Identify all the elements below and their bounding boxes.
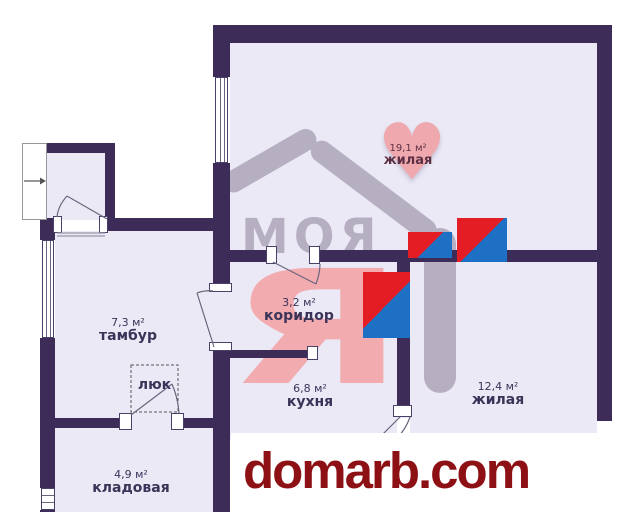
- site-watermark: domarb.com: [231, 433, 630, 509]
- room-label-tambur: 7,3 м² тамбур: [83, 317, 173, 344]
- footer-banner: domarb.com: [231, 433, 630, 512]
- room-name: кладовая: [86, 481, 176, 496]
- tambur-door-swing: [197, 291, 214, 347]
- room-label-corridor: 3,2 м² коридор: [254, 297, 344, 324]
- entry-arrow-icon: [24, 178, 46, 185]
- red-blue-marker-small: [408, 232, 452, 258]
- entry-door-swing: [57, 196, 107, 236]
- room-label-living-12: 12,4 м² жилая: [453, 381, 543, 408]
- room-label-storage: 4,9 м² кладовая: [86, 469, 176, 496]
- red-blue-marker-large: [457, 218, 507, 262]
- floor-plan-canvas: МОЯ Я: [0, 0, 630, 512]
- room-name: жилая: [366, 154, 450, 168]
- room-name: тамбур: [83, 329, 173, 344]
- room-label-living-19: 19,1 м² жилая: [366, 143, 450, 168]
- corridor-door-swing: [273, 262, 320, 284]
- red-blue-marker-vertical: [363, 272, 410, 338]
- room-name: коридор: [254, 309, 344, 324]
- room-name: жилая: [453, 393, 543, 408]
- hatch-label: люк: [131, 377, 178, 393]
- room-name: кухня: [265, 395, 355, 410]
- room-label-kitchen: 6,8 м² кухня: [265, 383, 355, 410]
